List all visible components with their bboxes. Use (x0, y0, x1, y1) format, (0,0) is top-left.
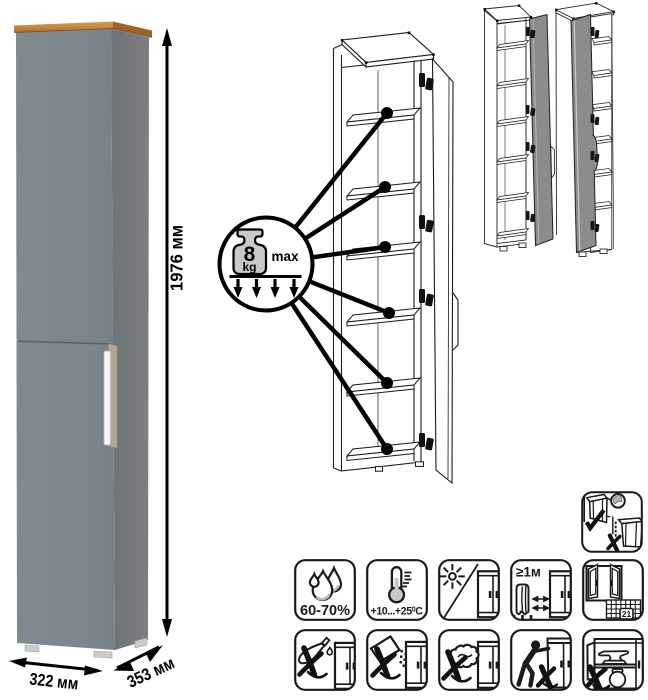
svg-text:≥1м: ≥1м (516, 565, 541, 580)
svg-text:60-70%: 60-70% (300, 603, 350, 619)
svg-text:kg: kg (242, 260, 256, 274)
svg-text:max: max (272, 249, 300, 264)
svg-text:21: 21 (622, 609, 632, 619)
svg-text:322 мм: 322 мм (29, 669, 80, 693)
svg-text:+10...+250C: +10...+250C (371, 606, 424, 618)
svg-text:1976 мм: 1976 мм (167, 225, 187, 291)
